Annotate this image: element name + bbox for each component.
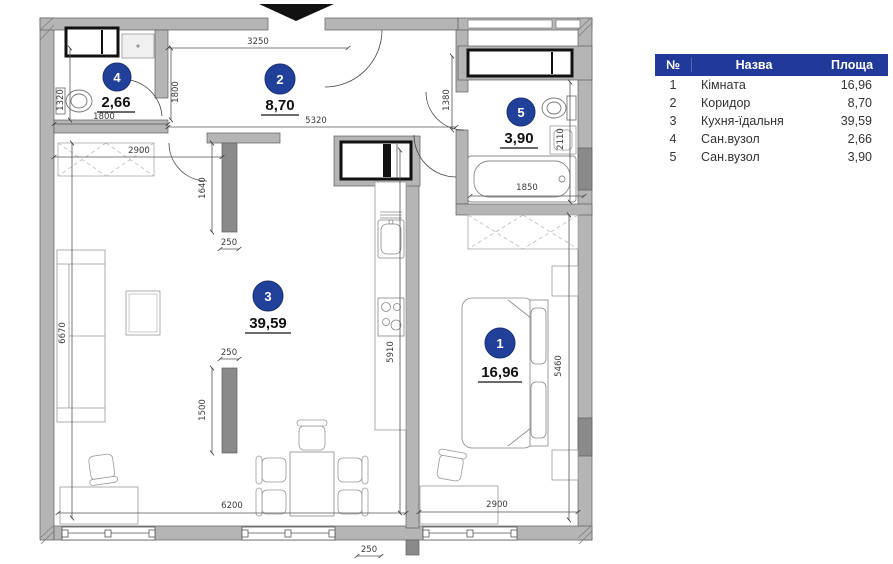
entrance-arrow-icon [259, 4, 334, 21]
legend-row: 5 Сан.вузол 3,90 [655, 148, 888, 166]
bathroom5-window [458, 46, 592, 80]
room-number: 3 [655, 114, 691, 128]
floor-plan-page: 3250 5320 1800 1320 1800 2900 1640 250 1… [0, 0, 893, 564]
dim-label: 2110 [556, 128, 566, 150]
toilet [542, 96, 576, 120]
room-badge-5: 5 3,90 [500, 98, 538, 148]
room-area: 39,59 [249, 315, 287, 332]
legend-header-area: Площа [816, 58, 888, 72]
dim-label: 5910 [386, 341, 396, 363]
dim-label: 1640 [198, 177, 208, 199]
room-area: 3,90 [504, 130, 533, 147]
dim-label: 2900 [128, 146, 150, 156]
room-badge-2: 2 8,70 [261, 64, 299, 115]
room-badge-4: 4 2,66 [97, 63, 135, 112]
nightstand [552, 266, 578, 296]
desk-bedroom [420, 449, 498, 524]
fixtures-kitchen [375, 182, 406, 430]
bathtub [468, 156, 576, 202]
dim-label: 1850 [516, 183, 538, 193]
dim-label: 6670 [58, 322, 68, 344]
dim-label: 1380 [442, 89, 452, 111]
room-name: Коридор [691, 96, 816, 110]
bottom-windows [62, 527, 517, 540]
legend-row: 3 Кухня-їдальня 39,59 [655, 112, 888, 130]
nightstand [552, 450, 578, 480]
entry-door-arc [325, 30, 382, 87]
room-area: 2,66 [101, 94, 130, 111]
room-area: 16,96 [816, 78, 888, 92]
wardrobe-bedroom [468, 215, 578, 249]
room-number: 3 [264, 289, 271, 304]
room-name: Кухня-їдальня [691, 114, 816, 128]
legend-header-num: № [655, 58, 691, 72]
dim-label: 250 [221, 238, 237, 248]
room-number: 4 [655, 132, 691, 146]
dining-set [256, 420, 368, 516]
room-number: 2 [655, 96, 691, 110]
legend-header-name: Назва [691, 58, 816, 72]
dim-label: 5460 [554, 355, 564, 377]
room-area: 3,90 [816, 150, 888, 164]
room-number: 4 [113, 70, 121, 85]
room-name: Сан.вузол [691, 132, 816, 146]
room-area: 39,59 [816, 114, 888, 128]
legend-table: № Назва Площа 1 Кімната 16,96 2 Коридор … [655, 54, 888, 166]
room-name: Сан.вузол [691, 150, 816, 164]
room-number: 1 [655, 78, 691, 92]
dim-label: 6200 [221, 501, 243, 511]
chair [434, 449, 467, 482]
room-badge-3: 3 39,59 [245, 281, 291, 333]
dim-label: 1320 [56, 89, 66, 111]
dim-label: 3250 [247, 37, 269, 47]
washing-machine [66, 28, 118, 56]
coffee-table [126, 291, 160, 335]
chair [338, 456, 368, 484]
dim-label: 250 [361, 545, 377, 555]
chair [86, 453, 118, 486]
legend-row: 4 Сан.вузол 2,66 [655, 130, 888, 148]
room-number: 5 [517, 105, 524, 120]
dim-label: 5320 [305, 116, 327, 126]
room-area: 16,96 [481, 364, 519, 381]
corridor-framed-box [334, 136, 420, 186]
room-number: 2 [276, 72, 283, 87]
room-area: 8,70 [265, 97, 294, 114]
room-name: Кімната [691, 78, 816, 92]
legend-header-row: № Назва Площа [655, 54, 888, 76]
legend-row: 2 Коридор 8,70 [655, 94, 888, 112]
room-area: 8,70 [816, 96, 888, 110]
chair [256, 488, 286, 516]
dining-table [290, 452, 334, 516]
dim-label: 2900 [486, 500, 508, 510]
chair [297, 420, 327, 450]
dim-label: 1800 [171, 81, 181, 103]
chair [256, 456, 286, 484]
room-number: 5 [655, 150, 691, 164]
dim-label: 1500 [198, 399, 208, 421]
chair [338, 488, 368, 516]
fixtures-living [57, 143, 368, 524]
room-number: 1 [496, 336, 503, 351]
legend-row: 1 Кімната 16,96 [655, 76, 888, 94]
dim-label: 1800 [93, 112, 115, 122]
living-door-arc [169, 143, 207, 181]
room-area: 2,66 [816, 132, 888, 146]
dim-label: 250 [221, 348, 237, 358]
